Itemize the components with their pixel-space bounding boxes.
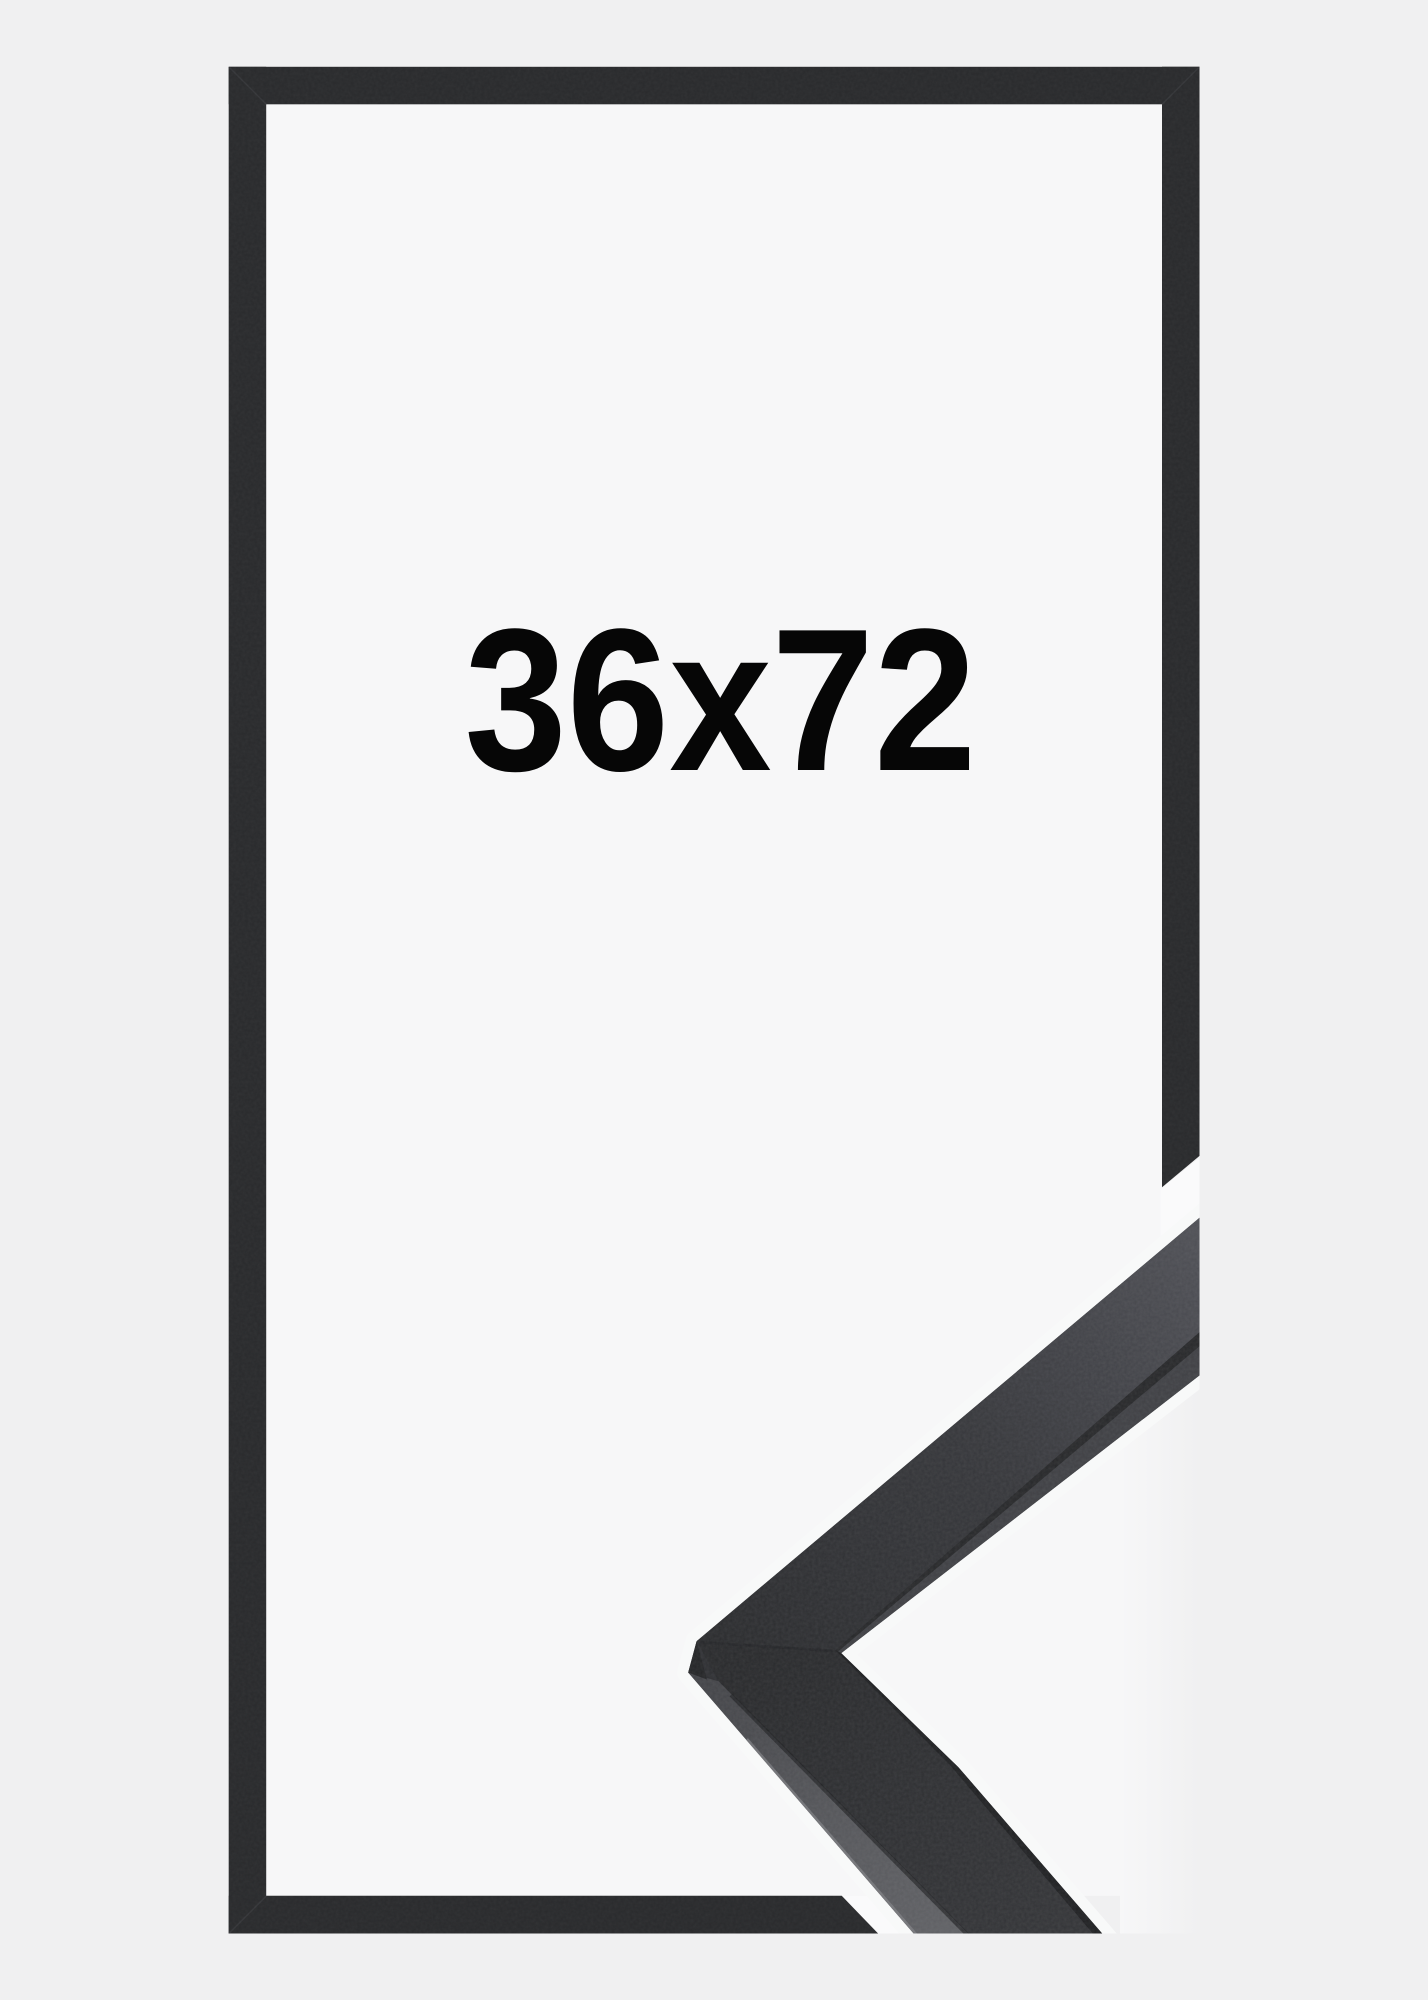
svg-text:36x72: 36x72: [464, 587, 976, 814]
